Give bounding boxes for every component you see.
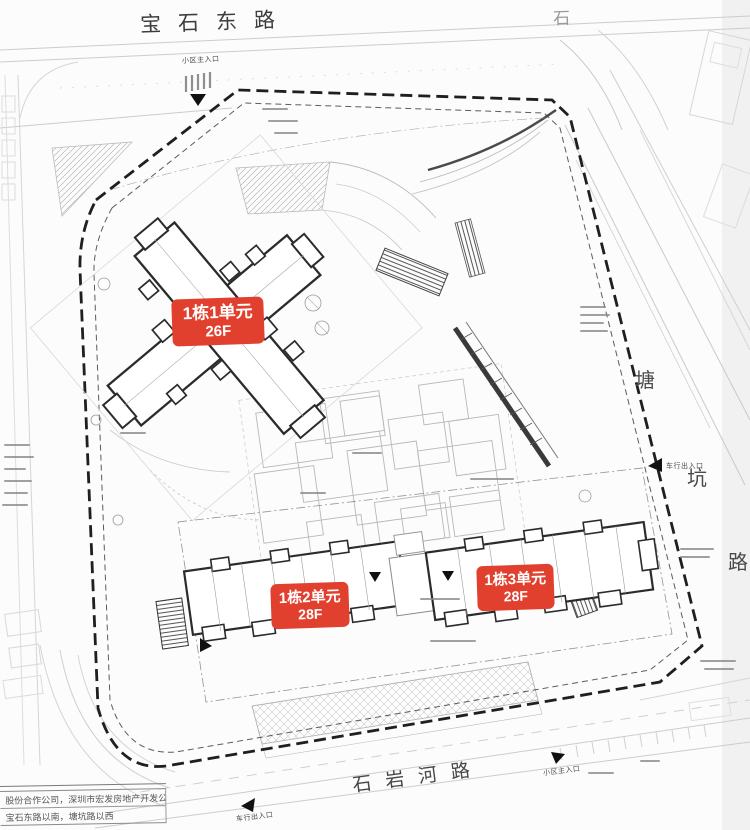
building-label-1-floors: 26F [205,322,231,340]
building-label-2[interactable]: 1栋2单元 28F [270,582,350,630]
site-boundary [80,90,702,767]
building-label-3-name: 1栋3单元 [484,570,546,589]
building-label-2-floors: 28F [298,606,323,623]
hatch-top-wedge [236,162,330,214]
building-label-1-name: 1栋1单元 [182,302,253,324]
building-label-3[interactable]: 1栋3单元 28F [476,564,555,612]
page-margins [722,0,750,830]
building-label-1[interactable]: 1栋1单元 26F [171,296,265,346]
entrance-label-top: 小区主入口 [182,54,220,66]
crosswalk [186,72,210,92]
entrance-arrow-icon [551,752,565,764]
site-plan-drawing [0,0,750,830]
bottom-crosshatch [252,662,538,744]
retaining-wall [455,322,558,466]
building-label-3-floors: 28F [503,588,528,605]
road-label-right-char: 塘 [635,364,655,393]
entrance-arrow-icon [241,798,255,812]
road-label-top: 宝石东路 [140,3,293,38]
building-label-2-name: 1栋2单元 [279,588,341,607]
road-label-top-right-partial: 石 [553,4,571,30]
site-plan-page: { "roads": { "top_label": "宝石东路", "top_r… [0,0,750,830]
entrance-label-right: 车行出入口 [666,461,704,471]
title-block: 股份合作公司，深圳市宏发房地产开发公司 宝石东路以南，塘坑路以西 [0,783,167,826]
road-label-right-char: 路 [728,546,748,575]
entrance-arrow-icon [190,94,206,106]
